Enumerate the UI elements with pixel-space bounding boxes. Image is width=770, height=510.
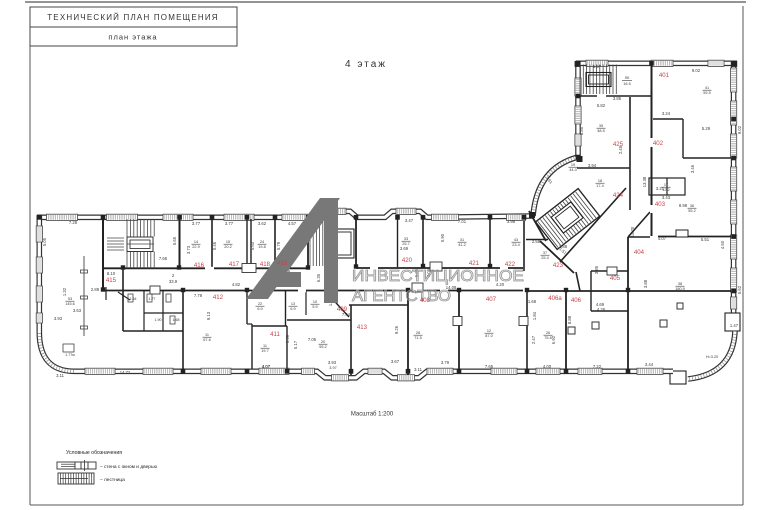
svg-text:5.59: 5.59 bbox=[285, 334, 290, 343]
svg-text:5.65: 5.65 bbox=[172, 236, 177, 245]
svg-text:48.5: 48.5 bbox=[597, 129, 604, 133]
svg-text:1.77: 1.77 bbox=[149, 297, 156, 301]
svg-text:5.82: 5.82 bbox=[597, 103, 606, 108]
svg-text:402: 402 bbox=[653, 140, 664, 147]
svg-text:33.9: 33.9 bbox=[169, 279, 178, 284]
svg-text:5.60: 5.60 bbox=[250, 241, 255, 250]
svg-text:5.29: 5.29 bbox=[702, 126, 711, 131]
svg-text:23.4: 23.4 bbox=[512, 243, 519, 247]
svg-text:– стена с окном и дверью: – стена с окном и дверью bbox=[100, 465, 157, 470]
svg-text:417: 417 bbox=[229, 261, 240, 268]
svg-text:9.13: 9.13 bbox=[206, 311, 211, 320]
svg-text:3.11: 3.11 bbox=[414, 367, 423, 372]
svg-text:5.05: 5.05 bbox=[42, 237, 47, 246]
svg-text:415: 415 bbox=[106, 277, 117, 284]
svg-text:31: 31 bbox=[460, 238, 464, 242]
svg-text:5.62: 5.62 bbox=[737, 285, 742, 294]
svg-text:14.72: 14.72 bbox=[120, 370, 131, 375]
svg-text:421: 421 bbox=[469, 260, 480, 267]
svg-text:59.5: 59.5 bbox=[703, 91, 710, 95]
svg-text:4.07: 4.07 bbox=[262, 364, 271, 369]
svg-text:3.73: 3.73 bbox=[186, 245, 191, 254]
svg-text:22: 22 bbox=[258, 302, 262, 306]
svg-text:406а: 406а bbox=[548, 295, 562, 302]
svg-text:422: 422 bbox=[505, 261, 516, 268]
svg-text:20.2: 20.2 bbox=[224, 245, 231, 249]
svg-text:4.57: 4.57 bbox=[288, 221, 297, 226]
svg-text:33: 33 bbox=[404, 237, 408, 241]
svg-text:25.7: 25.7 bbox=[402, 242, 409, 246]
svg-text:7.01: 7.01 bbox=[458, 219, 467, 224]
svg-text:ЛК: ЛК bbox=[625, 76, 630, 80]
svg-text:419: 419 bbox=[277, 260, 288, 267]
svg-text:71.5: 71.5 bbox=[414, 336, 421, 340]
svg-text:14: 14 bbox=[194, 240, 198, 244]
svg-text:3.93: 3.93 bbox=[54, 316, 63, 321]
svg-text:423: 423 bbox=[553, 262, 564, 269]
svg-text:6.92: 6.92 bbox=[551, 335, 556, 344]
svg-text:37: 37 bbox=[543, 251, 547, 255]
svg-text:55.2: 55.2 bbox=[319, 345, 326, 349]
svg-text:87.0: 87.0 bbox=[485, 334, 492, 338]
svg-text:8.85: 8.85 bbox=[579, 126, 584, 135]
svg-text:3.63: 3.63 bbox=[73, 308, 82, 313]
svg-text:3.85: 3.85 bbox=[594, 265, 599, 274]
svg-text:407: 407 bbox=[486, 296, 497, 303]
svg-text:5.79: 5.79 bbox=[276, 241, 281, 250]
svg-text:3.62: 3.62 bbox=[258, 221, 267, 226]
svg-text:6.9: 6.9 bbox=[290, 307, 295, 311]
svg-text:180.9: 180.9 bbox=[675, 287, 685, 291]
svg-text:3.67: 3.67 bbox=[391, 359, 400, 364]
svg-text:АГЕНТСТВО: АГЕНТСТВО bbox=[352, 288, 451, 305]
svg-text:8.88: 8.88 bbox=[567, 315, 572, 324]
svg-text:43: 43 bbox=[514, 238, 518, 242]
svg-text:14.20: 14.20 bbox=[630, 226, 635, 237]
svg-text:11: 11 bbox=[205, 333, 209, 337]
svg-text:1.47: 1.47 bbox=[730, 323, 739, 328]
svg-text:20: 20 bbox=[321, 340, 325, 344]
svg-text:404: 404 bbox=[634, 249, 645, 256]
svg-text:4 этаж: 4 этаж bbox=[345, 59, 387, 70]
svg-text:ТЕХНИЧЕСКИЙ ПЛАН ПОМЕЩЕНИЯ: ТЕХНИЧЕСКИЙ ПЛАН ПОМЕЩЕНИЯ bbox=[47, 13, 219, 22]
svg-text:5.57: 5.57 bbox=[593, 64, 602, 69]
svg-text:3.69: 3.69 bbox=[400, 246, 409, 251]
svg-text:план этажа: план этажа bbox=[108, 33, 157, 42]
svg-text:412: 412 bbox=[213, 294, 224, 301]
svg-text:3.43: 3.43 bbox=[662, 195, 671, 200]
svg-text:15: 15 bbox=[226, 240, 230, 244]
svg-text:3.77: 3.77 bbox=[192, 221, 201, 226]
svg-text:28: 28 bbox=[416, 331, 420, 335]
svg-text:5.9: 5.9 bbox=[312, 305, 317, 309]
svg-text:4.50: 4.50 bbox=[720, 240, 725, 249]
svg-text:7.66: 7.66 bbox=[159, 256, 168, 261]
svg-text:13.38: 13.38 bbox=[642, 176, 647, 187]
svg-text:9.26: 9.26 bbox=[394, 325, 399, 334]
svg-text:416: 416 bbox=[194, 262, 205, 269]
svg-text:2.88: 2.88 bbox=[91, 287, 100, 292]
svg-text:25.4: 25.4 bbox=[541, 256, 548, 260]
svg-text:425: 425 bbox=[613, 141, 624, 148]
svg-text:3.85: 3.85 bbox=[613, 96, 622, 101]
svg-text:36: 36 bbox=[690, 204, 694, 208]
svg-text:3.97: 3.97 bbox=[329, 366, 336, 370]
svg-text:2.47: 2.47 bbox=[531, 335, 536, 344]
svg-text:3.79: 3.79 bbox=[441, 360, 450, 365]
svg-text:19: 19 bbox=[571, 163, 575, 167]
svg-text:22.9: 22.9 bbox=[192, 245, 199, 249]
svg-text:3.88: 3.88 bbox=[643, 279, 648, 288]
svg-text:2.58: 2.58 bbox=[532, 239, 541, 244]
svg-text:55.2: 55.2 bbox=[688, 209, 695, 213]
svg-text:3.94: 3.94 bbox=[588, 163, 597, 168]
svg-text:Условные обозначения: Условные обозначения bbox=[66, 450, 122, 456]
svg-text:12: 12 bbox=[487, 329, 491, 333]
svg-text:1.32: 1.32 bbox=[62, 287, 67, 296]
svg-text:41.2: 41.2 bbox=[458, 243, 465, 247]
svg-text:7.65: 7.65 bbox=[485, 364, 494, 369]
svg-text:17: 17 bbox=[664, 183, 668, 187]
svg-text:9.02: 9.02 bbox=[737, 125, 742, 134]
svg-text:4.00: 4.00 bbox=[543, 364, 552, 369]
svg-text:53: 53 bbox=[68, 297, 72, 301]
svg-text:1.68: 1.68 bbox=[528, 299, 537, 304]
svg-text:1.77м: 1.77м bbox=[65, 353, 75, 357]
svg-text:16.5: 16.5 bbox=[623, 82, 630, 86]
svg-text:7.22: 7.22 bbox=[593, 364, 602, 369]
svg-text:41: 41 bbox=[705, 86, 709, 90]
svg-text:3.44: 3.44 bbox=[645, 362, 654, 367]
svg-text:7.05: 7.05 bbox=[308, 337, 317, 342]
svg-text:1.90: 1.90 bbox=[155, 318, 162, 322]
svg-text:3.47: 3.47 bbox=[405, 218, 414, 223]
svg-text:8.10: 8.10 bbox=[107, 271, 116, 276]
svg-text:ИНВЕСТИЦИОННОЕ: ИНВЕСТИЦИОННОЕ bbox=[352, 268, 524, 285]
svg-text:1.68: 1.68 bbox=[173, 318, 180, 322]
svg-text:406: 406 bbox=[571, 297, 582, 304]
svg-text:1.84: 1.84 bbox=[532, 311, 537, 320]
svg-text:3.93: 3.93 bbox=[328, 360, 337, 365]
svg-text:5.17: 5.17 bbox=[293, 340, 298, 349]
svg-text:19.7: 19.7 bbox=[261, 349, 268, 353]
svg-text:6.9: 6.9 bbox=[257, 307, 262, 311]
svg-text:11: 11 bbox=[263, 344, 267, 348]
svg-text:418: 418 bbox=[260, 261, 271, 268]
svg-text:5.90: 5.90 bbox=[440, 233, 445, 242]
svg-text:17.4: 17.4 bbox=[596, 184, 603, 188]
svg-text:9.02: 9.02 bbox=[692, 68, 701, 73]
svg-text:19.8: 19.8 bbox=[258, 245, 265, 249]
svg-text:3.77: 3.77 bbox=[225, 221, 234, 226]
svg-text:75.8: 75.8 bbox=[544, 336, 551, 340]
svg-text:44.0: 44.0 bbox=[569, 168, 576, 172]
svg-text:1.54: 1.54 bbox=[130, 297, 137, 301]
svg-text:403: 403 bbox=[655, 201, 666, 208]
svg-text:8.98: 8.98 bbox=[679, 203, 688, 208]
svg-text:3.24: 3.24 bbox=[662, 111, 671, 116]
svg-text:24: 24 bbox=[260, 240, 264, 244]
svg-text:13: 13 bbox=[291, 302, 295, 306]
svg-text:3.46: 3.46 bbox=[690, 164, 695, 173]
svg-text:411: 411 bbox=[270, 331, 280, 338]
svg-text:420: 420 bbox=[402, 257, 413, 264]
svg-text:18: 18 bbox=[598, 179, 602, 183]
svg-text:10: 10 bbox=[313, 300, 317, 304]
svg-text:– лестница: – лестница bbox=[100, 478, 125, 483]
svg-text:67.6: 67.6 bbox=[203, 338, 210, 342]
svg-text:5.51: 5.51 bbox=[701, 237, 710, 242]
svg-text:Масштаб 1:200: Масштаб 1:200 bbox=[351, 412, 394, 418]
svg-text:5.46: 5.46 bbox=[212, 241, 217, 250]
svg-text:409: 409 bbox=[337, 306, 348, 313]
svg-text:413: 413 bbox=[357, 324, 368, 331]
svg-text:H=3.20: H=3.20 bbox=[706, 355, 718, 359]
svg-text:35: 35 bbox=[599, 124, 603, 128]
svg-text:145.6: 145.6 bbox=[65, 302, 75, 306]
svg-text:424: 424 bbox=[613, 192, 624, 199]
svg-text:3.98: 3.98 bbox=[507, 219, 516, 224]
svg-text:6.35: 6.35 bbox=[316, 273, 321, 282]
svg-text:405: 405 bbox=[610, 275, 621, 282]
svg-text:401: 401 bbox=[659, 72, 670, 79]
svg-text:4.82: 4.82 bbox=[232, 282, 241, 287]
svg-text:7.28: 7.28 bbox=[69, 220, 78, 225]
svg-text:7.78: 7.78 bbox=[194, 293, 203, 298]
svg-text:12.2: 12.2 bbox=[662, 188, 669, 192]
svg-text:408: 408 bbox=[420, 297, 431, 304]
svg-text:38: 38 bbox=[678, 282, 682, 286]
svg-text:4.26: 4.26 bbox=[597, 307, 606, 312]
svg-text:3.11: 3.11 bbox=[56, 373, 65, 378]
svg-text:26: 26 bbox=[546, 331, 550, 335]
svg-text:4.07: 4.07 bbox=[658, 236, 667, 241]
